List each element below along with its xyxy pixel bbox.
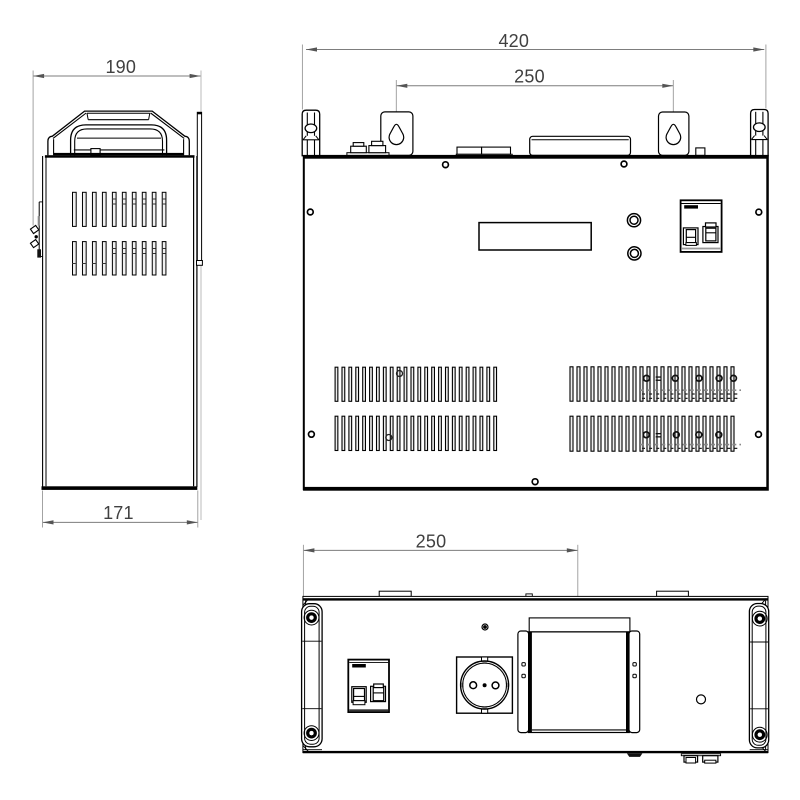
svg-text:171: 171: [103, 503, 134, 523]
svg-text:420: 420: [498, 31, 529, 51]
svg-text:250: 250: [416, 532, 447, 552]
svg-text:190: 190: [105, 57, 136, 77]
svg-text:250: 250: [514, 67, 545, 87]
